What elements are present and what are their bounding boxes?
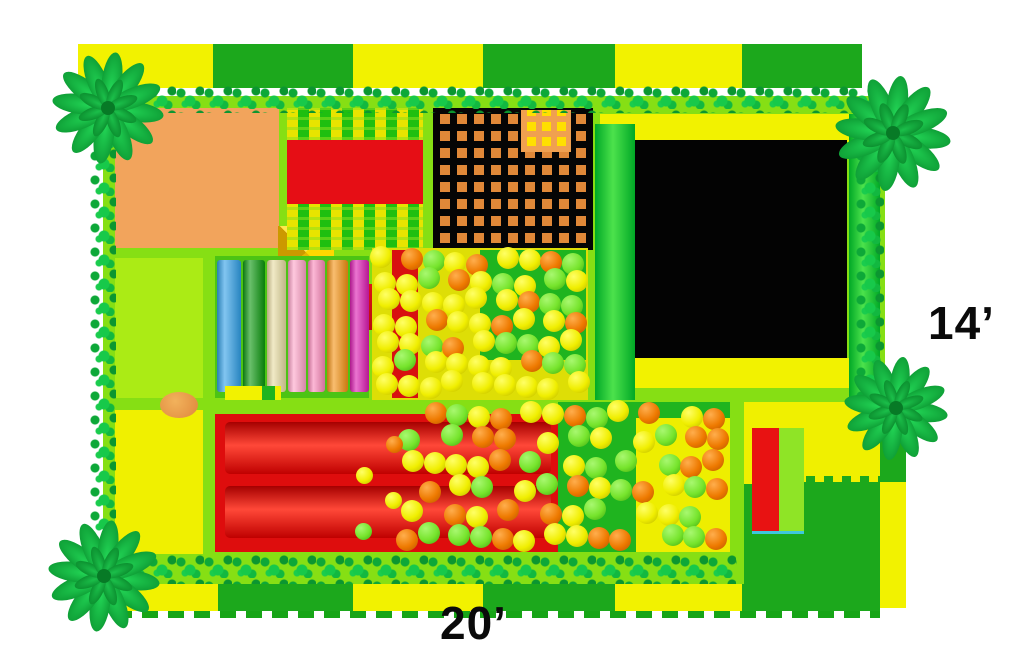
- ball: [584, 498, 606, 520]
- ball: [632, 481, 654, 503]
- garland-top: [92, 85, 882, 113]
- tree-center: [97, 569, 111, 583]
- rollers-panel: [215, 256, 369, 398]
- ball: [563, 455, 585, 477]
- tree-center: [101, 101, 115, 115]
- ball: [497, 247, 519, 269]
- ball: [497, 499, 519, 521]
- trampoline-left-column: [595, 124, 635, 400]
- ball: [566, 525, 588, 547]
- ball: [589, 477, 611, 499]
- tree-center: [889, 401, 903, 415]
- ball: [540, 503, 562, 525]
- ball: [470, 526, 492, 548]
- ball: [402, 450, 424, 472]
- playground-floorplan: 20’ 14’: [0, 0, 1024, 662]
- depth-dimension-label: 14’: [928, 296, 1023, 350]
- ball: [703, 408, 725, 430]
- ball: [564, 405, 586, 427]
- ball: [679, 506, 701, 528]
- border-tile-yellow: [615, 584, 742, 611]
- bridge-red-mat: [287, 140, 423, 204]
- border-tile-green: [483, 44, 615, 88]
- roller-light-pink: [288, 260, 306, 392]
- ball: [521, 350, 543, 372]
- ball: [356, 467, 373, 484]
- green-step-block: [262, 386, 275, 400]
- mini-slide-edge: [752, 531, 804, 534]
- ball: [490, 408, 512, 430]
- border-tile-green: [213, 44, 353, 88]
- roller-magenta: [350, 260, 369, 392]
- trampoline-area: [595, 108, 880, 400]
- ball: [496, 289, 518, 311]
- roller-blue: [217, 260, 241, 392]
- ball: [705, 528, 727, 550]
- ball: [355, 523, 372, 540]
- tree-center: [886, 126, 900, 140]
- roller-beige: [267, 260, 286, 392]
- ball: [636, 502, 658, 524]
- ball: [494, 374, 516, 396]
- trampoline-frame-top: [600, 114, 868, 142]
- trampoline-frame-bottom: [635, 358, 849, 388]
- ball: [394, 349, 416, 371]
- border-tile-green: [742, 584, 880, 611]
- ball: [590, 427, 612, 449]
- ball: [400, 290, 422, 312]
- ball: [425, 402, 447, 424]
- ball: [444, 504, 466, 526]
- ball: [418, 522, 440, 544]
- border-tile-green: [742, 44, 862, 88]
- border-tile-yellow: [615, 44, 742, 88]
- ball: [468, 406, 490, 428]
- ball: [680, 456, 702, 478]
- ball: [567, 475, 589, 497]
- ball: [401, 500, 423, 522]
- ball: [568, 371, 590, 393]
- rope-bridge-panel: [287, 108, 423, 250]
- ball: [566, 270, 588, 292]
- mini-slide-red: [752, 428, 779, 532]
- ball: [560, 329, 582, 351]
- tunnel-hole: [160, 392, 198, 418]
- ball: [426, 309, 448, 331]
- ball: [513, 308, 535, 330]
- ball: [495, 332, 517, 354]
- ball: [658, 504, 680, 526]
- ball: [662, 524, 684, 546]
- ball: [425, 351, 447, 373]
- ball: [398, 375, 420, 397]
- climbing-net-panel: [433, 108, 593, 250]
- ball: [663, 474, 685, 496]
- ball: [418, 267, 440, 289]
- garland-bottom: [92, 554, 737, 584]
- roller-green: [243, 260, 265, 392]
- ball: [588, 527, 610, 549]
- ball: [586, 407, 608, 429]
- roller-pink: [308, 260, 325, 392]
- ball: [585, 457, 607, 479]
- ball: [376, 373, 398, 395]
- ball: [562, 505, 584, 527]
- roller-orange: [327, 260, 348, 392]
- ball: [638, 402, 660, 424]
- ball: [542, 403, 564, 425]
- ball: [544, 523, 566, 545]
- net-orange-patch: [521, 110, 571, 152]
- ball: [401, 248, 423, 270]
- ball: [702, 449, 724, 471]
- ball: [615, 450, 637, 472]
- ball: [655, 424, 677, 446]
- ball: [370, 246, 392, 268]
- ball: [396, 529, 418, 551]
- ball: [473, 330, 495, 352]
- ball: [519, 249, 541, 271]
- ball: [544, 268, 566, 290]
- ball: [419, 481, 441, 503]
- ball: [420, 377, 442, 399]
- ball: [659, 454, 681, 476]
- mini-slide-green: [779, 428, 804, 532]
- ball: [467, 456, 489, 478]
- ball: [424, 452, 446, 474]
- ball: [377, 331, 399, 353]
- ball: [492, 528, 514, 550]
- ball: [472, 372, 494, 394]
- border-tile-yellow: [353, 44, 483, 88]
- ball: [386, 436, 403, 453]
- garland-left: [90, 100, 116, 582]
- ball: [448, 269, 470, 291]
- lime-mat-panel: [115, 258, 203, 398]
- ball: [466, 506, 488, 528]
- width-dimension-label: 20’: [440, 596, 550, 650]
- ball: [494, 428, 516, 450]
- floor-strip-yellow: [880, 482, 906, 608]
- trampoline-mat: [635, 140, 847, 358]
- border-tile-green: [218, 584, 353, 611]
- ball: [489, 449, 511, 471]
- ball: [516, 376, 538, 398]
